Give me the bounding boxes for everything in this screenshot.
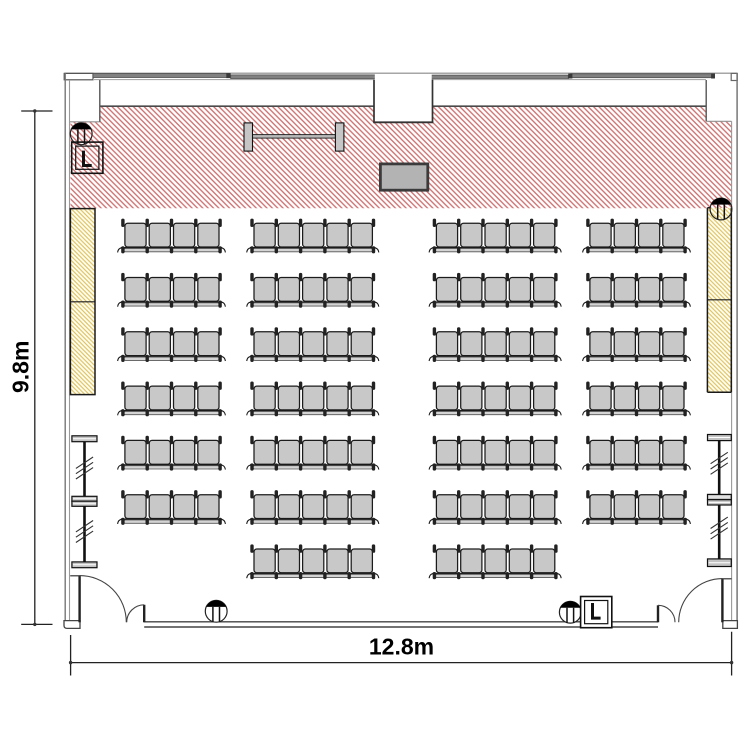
svg-text:12.8m: 12.8m — [369, 634, 434, 660]
svg-text:9.8m: 9.8m — [8, 341, 34, 393]
